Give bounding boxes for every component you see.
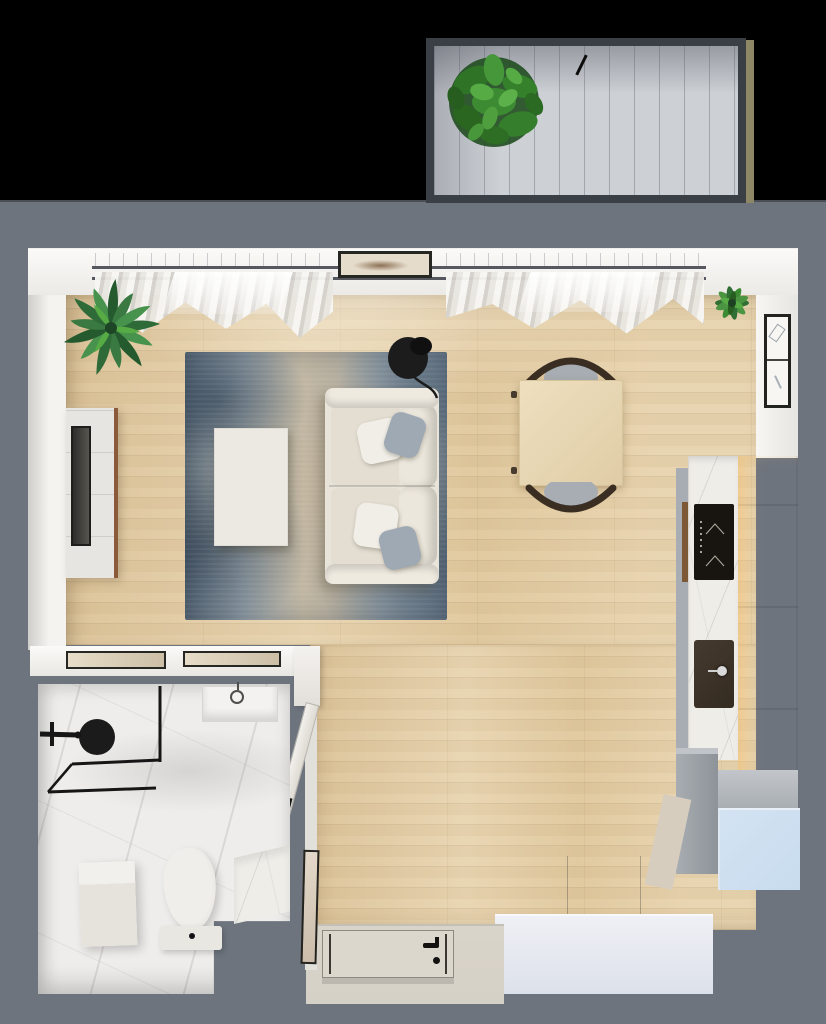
sofa-seat-divider: [329, 485, 435, 487]
door-jamb-cabinet: [294, 646, 320, 706]
sheer-curtain-right: [518, 272, 657, 312]
bathroom-vanity: [234, 845, 290, 924]
kitchen-tall-cabinets: [738, 456, 798, 810]
wardrobe-front: [495, 914, 713, 994]
door-panel-line-left: [329, 934, 331, 974]
sofa-armrest-bottom: [325, 564, 439, 584]
dining-chair-north: [521, 336, 621, 386]
floor-plan-scene: [0, 0, 826, 1024]
tv-screen: [71, 426, 91, 546]
sofa: [325, 388, 439, 584]
ledge-picture-frame-1: [66, 651, 166, 669]
sheer-curtain-left: [161, 272, 293, 314]
corner-plant-right: [704, 278, 760, 328]
washing-machine: [79, 861, 138, 947]
table-leg-nub-2: [511, 467, 517, 474]
kitchen-sink: [694, 640, 734, 708]
dining-table: [519, 380, 623, 486]
balcony-side-trim: [746, 40, 754, 203]
palm-plant-left: [52, 268, 170, 386]
wardrobe-top: [495, 856, 713, 916]
window-glazing-left: [95, 253, 333, 267]
leaning-picture: [301, 850, 320, 964]
art-sketch-divider: [767, 359, 788, 361]
door-handle-stem: [435, 937, 439, 944]
toilet-flush-button: [189, 933, 195, 939]
wall-art-landscape: [338, 251, 432, 278]
blue-unit: [718, 808, 800, 890]
door-lock-dot: [433, 957, 440, 964]
ledge-picture-frame-2: [183, 651, 281, 667]
round-mirror: [230, 690, 244, 704]
faucet-spout: [708, 670, 718, 672]
door-panel-line-right: [445, 934, 447, 974]
dining-chair-south: [521, 482, 621, 534]
art-sketch-shape-bottom: [774, 375, 782, 389]
wall-art-sketch: [764, 314, 791, 408]
floor-lamp: [383, 334, 445, 400]
table-leg-nub-1: [511, 391, 517, 398]
balcony-tree-plant: [432, 40, 560, 168]
faucet: [717, 666, 727, 676]
door-shadow: [322, 978, 454, 984]
window-glazing-right: [446, 253, 703, 267]
mirror-stem: [237, 682, 239, 690]
front-door: [322, 930, 454, 978]
counter-wood-panel: [682, 502, 688, 582]
kitchen-end-cap: [718, 770, 798, 808]
induction-cooktop: [694, 504, 734, 580]
kitchen-counter: [688, 456, 738, 760]
coffee-table: [214, 428, 288, 546]
art-sketch-shape-top: [768, 324, 785, 343]
